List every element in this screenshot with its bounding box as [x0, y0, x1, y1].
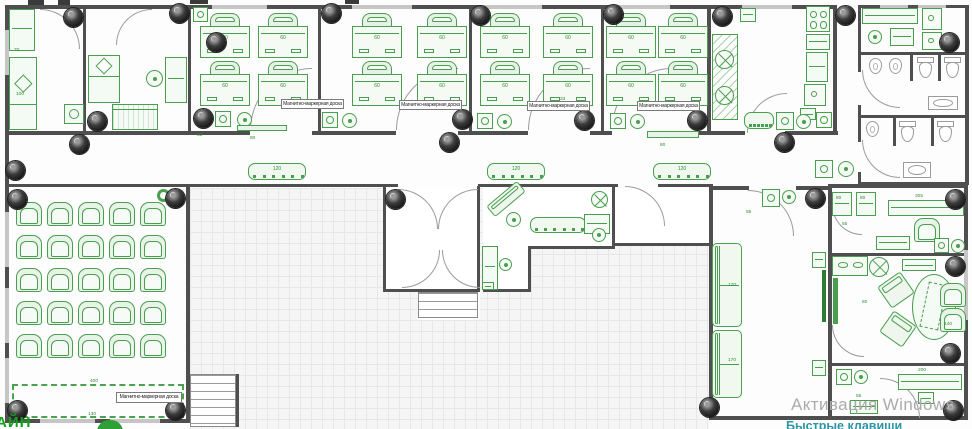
- detail: [717, 10, 723, 16]
- chair: [47, 334, 75, 360]
- wall-marker: [28, 0, 44, 5]
- detail: [512, 218, 516, 222]
- detail: [608, 8, 614, 14]
- detail: [535, 228, 538, 231]
- wall-marker: [190, 0, 208, 4]
- window: [5, 358, 9, 403]
- detail: [765, 124, 768, 127]
- fan-icon: [715, 50, 734, 69]
- detail: [661, 81, 705, 82]
- detail: [859, 375, 863, 379]
- marker-board-label: Магнитно-маркерная доска: [399, 100, 462, 110]
- detail: [211, 36, 217, 42]
- dome-camera-icon: [170, 4, 189, 23]
- dome-camera-icon: [941, 344, 960, 363]
- detail: [753, 124, 756, 127]
- wall: [528, 246, 615, 249]
- detail: [550, 49, 560, 53]
- detail: [432, 65, 452, 70]
- detail: 60: [200, 74, 250, 106]
- wall-board: [237, 125, 287, 131]
- detail: [767, 194, 776, 203]
- detail: [265, 49, 275, 53]
- detail: [919, 62, 932, 78]
- wall-board: [647, 131, 699, 138]
- detail: [905, 265, 933, 266]
- detail: [385, 49, 395, 53]
- detail: [51, 274, 69, 290]
- dome-camera-icon: [64, 8, 83, 27]
- student-desk: 60: [417, 13, 467, 60]
- detail: [787, 195, 791, 199]
- detail: 60: [418, 84, 466, 89]
- detail: [563, 228, 566, 231]
- detail: 60: [606, 26, 656, 58]
- wall: [5, 184, 398, 187]
- sofa: [712, 330, 742, 398]
- wall: [938, 55, 941, 81]
- chair: [940, 308, 968, 334]
- detail: 60: [352, 74, 402, 106]
- detail: [820, 116, 828, 124]
- detail: [639, 49, 649, 53]
- dome-camera-icon: [166, 401, 185, 420]
- stairs: [418, 292, 478, 318]
- dome-camera-icon: [471, 6, 490, 25]
- detail: [511, 175, 514, 178]
- detail: [51, 307, 69, 323]
- fixture: [816, 112, 832, 128]
- detail: [597, 233, 601, 237]
- detail: [170, 192, 176, 198]
- detail: [385, 97, 395, 101]
- shortcut-keys-watermark: Быстрые клавиши: [786, 419, 902, 429]
- sink-basin: [592, 228, 606, 242]
- detail: [840, 9, 846, 15]
- detail: [203, 81, 247, 82]
- sink-basin: [868, 30, 882, 44]
- wall: [478, 184, 618, 187]
- detail: [20, 241, 38, 257]
- detail: [367, 17, 387, 22]
- detail: [692, 114, 698, 120]
- detail: [687, 175, 690, 178]
- furniture: [876, 236, 910, 250]
- detail: [495, 17, 515, 22]
- detail: [658, 175, 661, 178]
- detail: [781, 117, 790, 126]
- dome-camera-icon: [440, 133, 459, 152]
- wall: [931, 118, 934, 146]
- chair: [140, 334, 168, 360]
- chair: [16, 235, 44, 261]
- detail: [261, 81, 305, 82]
- chair: [109, 202, 137, 228]
- fixture: [64, 104, 84, 124]
- detail: [203, 33, 247, 34]
- bench: 120: [248, 163, 306, 180]
- armchair: [877, 271, 915, 308]
- detail: [68, 11, 74, 17]
- wall: [188, 5, 191, 133]
- detail: [144, 307, 162, 323]
- coat-rack: [712, 34, 738, 120]
- detail: 60: [259, 84, 307, 89]
- furniture: [806, 34, 830, 50]
- detail: [715, 246, 718, 324]
- detail: [12, 404, 18, 410]
- dome-camera-icon: [322, 4, 341, 23]
- detail: [939, 126, 952, 142]
- detail: [513, 49, 523, 53]
- detail: [355, 33, 399, 34]
- fixture: [215, 111, 231, 127]
- detail: [348, 119, 352, 123]
- detail: [928, 38, 933, 43]
- door-swing-icon: [862, 140, 900, 178]
- fixture: [934, 238, 949, 253]
- detail: [82, 307, 100, 323]
- chair: [109, 334, 137, 360]
- detail: [810, 192, 816, 198]
- detail: [893, 63, 899, 70]
- detail: [840, 373, 848, 381]
- sink: [928, 96, 958, 110]
- detail: [673, 17, 693, 22]
- detail: [233, 49, 243, 53]
- bed: [88, 55, 120, 103]
- detail: [811, 91, 817, 97]
- wall: [833, 5, 837, 135]
- toilet: [899, 121, 916, 144]
- detail: 120: [249, 167, 305, 172]
- detail: [504, 263, 508, 267]
- sink-basin: [854, 370, 868, 384]
- wall: [709, 186, 749, 190]
- dimension-label: 80: [860, 196, 865, 201]
- detail: [613, 97, 623, 101]
- detail: [10, 104, 36, 105]
- detail: 60: [481, 84, 529, 89]
- detail: [810, 21, 817, 28]
- marker-board-label: Магнитно-маркерная доска: [527, 101, 590, 111]
- wall: [832, 363, 964, 366]
- wall: [910, 55, 913, 81]
- detail: [945, 347, 951, 353]
- detail: [170, 404, 176, 410]
- detail: [673, 65, 693, 70]
- door-swing-icon: [862, 70, 900, 108]
- detail: [820, 11, 827, 18]
- detail: [168, 78, 184, 79]
- wall: [858, 5, 861, 72]
- detail: [20, 307, 38, 323]
- dimension-label: 33: [560, 97, 565, 102]
- detail: [20, 340, 38, 356]
- fixture: [477, 113, 493, 129]
- detail: [420, 33, 464, 34]
- detail: 120: [654, 167, 710, 172]
- chair: [78, 202, 106, 228]
- detail: [113, 241, 131, 257]
- detail: 60: [544, 84, 592, 89]
- detail: 60: [258, 26, 308, 58]
- detail: [113, 208, 131, 224]
- student-desk: 60: [658, 13, 708, 60]
- detail: 60: [417, 26, 467, 58]
- chair: [109, 235, 137, 261]
- detail: [82, 241, 100, 257]
- furniture: [890, 28, 914, 46]
- detail: 60: [480, 74, 530, 106]
- detail: [613, 49, 623, 53]
- detail: [51, 241, 69, 257]
- detail: [873, 35, 877, 39]
- detail: [944, 289, 962, 305]
- detail: [521, 175, 524, 178]
- detail: [424, 49, 434, 53]
- detail: [696, 175, 699, 178]
- detail: [576, 49, 586, 53]
- dome-camera-icon: [713, 7, 732, 26]
- detail: [944, 36, 950, 42]
- detail: [553, 228, 556, 231]
- chair: [16, 268, 44, 294]
- bench: 120: [487, 163, 545, 180]
- detail: [908, 165, 926, 175]
- detail: [263, 175, 266, 178]
- detail: [450, 49, 460, 53]
- sink-basin: [630, 114, 645, 129]
- detail: [265, 97, 275, 101]
- detail: [901, 126, 914, 142]
- detail: [233, 97, 243, 101]
- wall: [858, 105, 861, 142]
- appliance: [806, 6, 830, 32]
- detail: 60: [201, 84, 249, 89]
- detail: [367, 65, 387, 70]
- chair: [78, 301, 106, 327]
- detail: [950, 260, 956, 266]
- dome-camera-icon: [70, 135, 89, 154]
- detail: [20, 208, 38, 224]
- detail: [144, 208, 162, 224]
- window: [482, 5, 542, 9]
- dome-camera-icon: [88, 112, 107, 131]
- detail: [614, 117, 622, 125]
- detail: [661, 33, 705, 34]
- wall-marker: [58, 0, 70, 5]
- detail: [540, 175, 543, 178]
- detail: 120: [488, 167, 544, 172]
- dome-camera-icon: [386, 190, 405, 209]
- bench: 120: [653, 163, 711, 180]
- detail: [938, 242, 945, 249]
- detail: [587, 223, 607, 224]
- sink-basin: [782, 190, 796, 204]
- sink-basin: [951, 239, 965, 253]
- window: [5, 288, 9, 343]
- dimension-label: 400: [90, 379, 98, 384]
- chair: [47, 268, 75, 294]
- detail: [113, 307, 131, 323]
- dimension-label: 170: [728, 283, 736, 288]
- furniture: [9, 9, 35, 51]
- fixture: [610, 113, 626, 129]
- detail: [197, 11, 204, 18]
- detail: [609, 33, 653, 34]
- dome-camera-icon: [940, 33, 959, 52]
- wall: [312, 131, 396, 135]
- detail: [530, 175, 533, 178]
- detail: [301, 175, 304, 178]
- furniture: [862, 8, 918, 24]
- dimension-label: 70: [14, 48, 19, 53]
- windows-activation-watermark: Активация Windows: [791, 395, 954, 415]
- detail: [69, 109, 79, 119]
- detail: [113, 109, 157, 110]
- wall: [785, 131, 838, 135]
- fixture: [836, 369, 852, 385]
- piano: [112, 104, 158, 130]
- chair: [47, 301, 75, 327]
- sink: [903, 162, 931, 178]
- chair: [47, 202, 75, 228]
- detail: [677, 175, 680, 178]
- wall: [601, 5, 604, 133]
- marker-board-label: Магнитно-маркерная доска: [281, 99, 344, 109]
- detail: [243, 118, 247, 122]
- armchair: [879, 310, 917, 347]
- window: [5, 212, 9, 267]
- detail: 60: [543, 26, 593, 58]
- detail: [485, 286, 491, 287]
- chair: [140, 235, 168, 261]
- detail: [483, 81, 527, 82]
- sink-basin: [796, 114, 811, 129]
- chair: [78, 268, 106, 294]
- sink-basin: [146, 70, 163, 87]
- detail: [359, 97, 369, 101]
- wall: [236, 374, 239, 427]
- furniture: [806, 52, 828, 82]
- chair: [109, 301, 137, 327]
- dimension-label: 170: [728, 358, 736, 363]
- wall: [965, 5, 969, 185]
- detail: [809, 66, 825, 67]
- detail: [113, 340, 131, 356]
- detail: [82, 208, 100, 224]
- dimension-label: 55: [842, 222, 847, 227]
- detail: [809, 41, 827, 42]
- bench: [744, 112, 774, 129]
- dimension-label: 130: [88, 412, 96, 417]
- chair: [16, 301, 44, 327]
- wall: [5, 131, 250, 135]
- detail: [253, 175, 256, 178]
- dimension-label: 80: [250, 136, 255, 141]
- wall: [612, 186, 615, 249]
- detail: [174, 7, 180, 13]
- dimension-label: 33: [197, 133, 202, 138]
- floor-plan: 6060606060606060606060606060606012012012…: [0, 0, 972, 429]
- detail: [933, 99, 953, 107]
- detail: [96, 58, 113, 75]
- detail: [457, 113, 463, 119]
- detail: [502, 175, 505, 178]
- detail: [891, 314, 913, 333]
- wall: [5, 419, 190, 423]
- detail: [802, 120, 806, 124]
- detail: 60: [480, 26, 530, 58]
- detail: [946, 62, 959, 78]
- detail: 60: [607, 84, 655, 89]
- dome-camera-icon: [453, 110, 472, 129]
- detail: [558, 17, 578, 22]
- dome-camera-icon: [6, 161, 25, 180]
- detail: [82, 274, 100, 290]
- furniture: [740, 8, 756, 22]
- wall: [318, 5, 321, 133]
- detail: [273, 17, 293, 22]
- detail: [153, 77, 157, 81]
- dimension-label: 85: [746, 210, 751, 215]
- furniture: [482, 282, 494, 290]
- dimension-label: 80: [862, 300, 867, 305]
- detail: [706, 175, 709, 178]
- chair: [940, 283, 968, 309]
- tv: [822, 270, 826, 322]
- urinal: [889, 58, 902, 74]
- detail: [20, 274, 38, 290]
- student-desk: 60: [352, 61, 402, 108]
- furniture: [812, 252, 826, 268]
- detail: [89, 76, 119, 77]
- dimension-label: 80: [836, 196, 841, 201]
- detail: [198, 112, 204, 118]
- chair: [140, 301, 168, 327]
- detail: [51, 340, 69, 356]
- detail: [956, 244, 960, 248]
- logo-text: АЙН: [0, 414, 31, 429]
- detail: [261, 33, 305, 34]
- wall-marker: [345, 0, 359, 4]
- sink-basin: [497, 114, 512, 129]
- detail: [719, 364, 739, 365]
- furniture: [832, 192, 852, 216]
- detail: [621, 17, 641, 22]
- detail: [743, 14, 753, 15]
- wall: [858, 115, 965, 118]
- detail: [12, 193, 18, 199]
- dome-camera-icon: [207, 33, 226, 52]
- fixture: [193, 7, 208, 22]
- dome-camera-icon: [946, 190, 965, 209]
- detail: [546, 81, 590, 82]
- detail: [14, 74, 32, 92]
- bench: [530, 217, 586, 233]
- furniture: [898, 374, 962, 390]
- detail: [558, 65, 578, 70]
- dimension-label: 200: [918, 368, 926, 373]
- detail: [513, 97, 523, 101]
- detail: 60: [352, 26, 402, 58]
- chair: [47, 235, 75, 261]
- detail: [815, 259, 823, 260]
- fixture: [762, 189, 780, 207]
- detail: [715, 333, 718, 395]
- detail: [215, 17, 235, 22]
